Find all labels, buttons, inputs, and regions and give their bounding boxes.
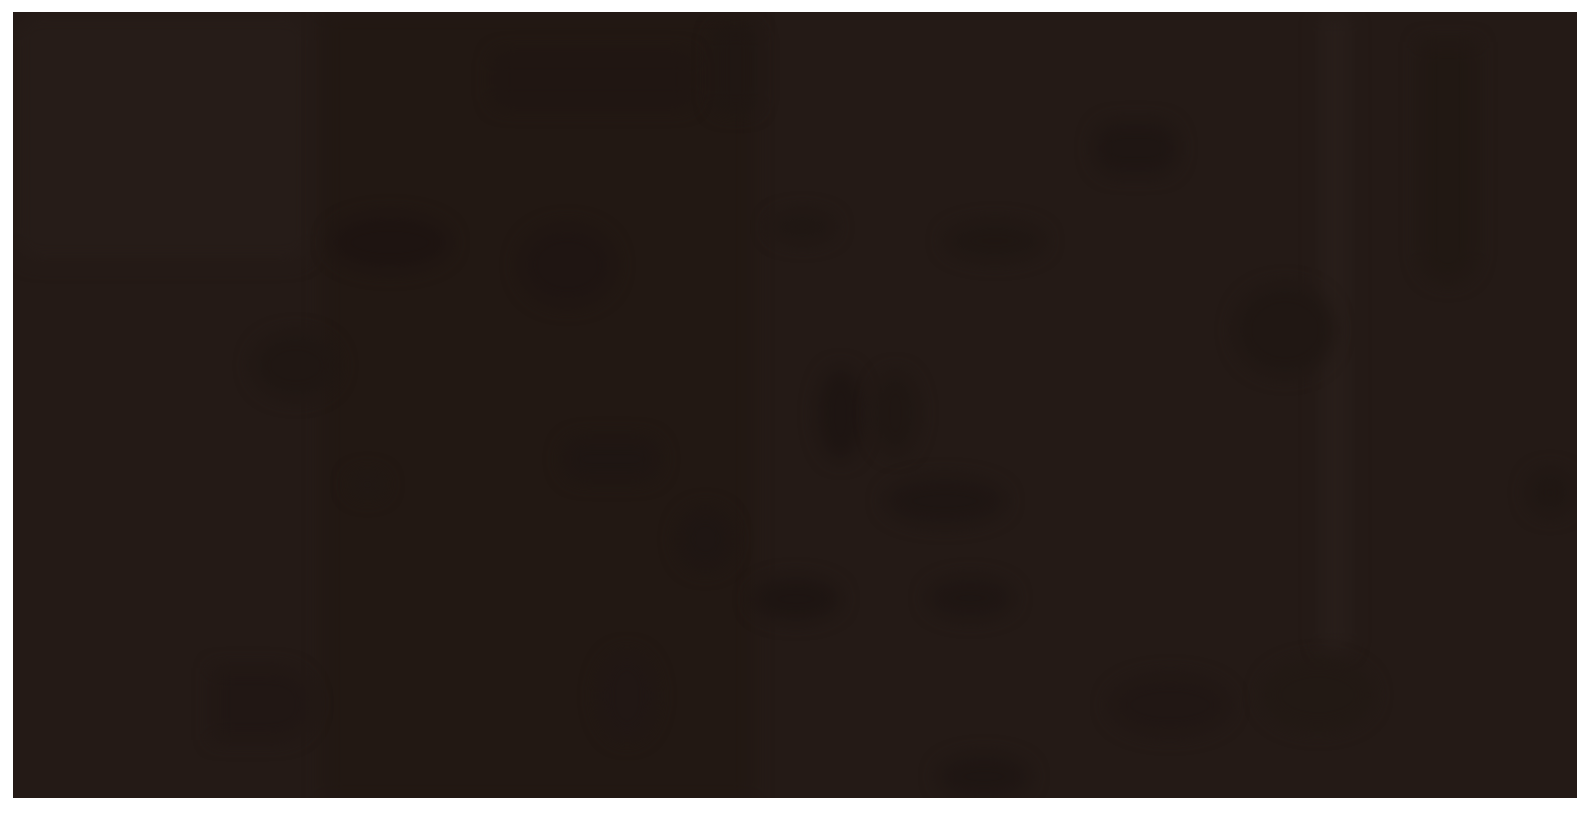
- shade-blob: [323, 12, 753, 798]
- shade-blob: [1528, 470, 1573, 515]
- shade-blob: [713, 27, 758, 112]
- shade-blob: [945, 222, 1045, 260]
- shade-blob: [770, 212, 835, 242]
- shade-blob: [1263, 660, 1373, 730]
- shade-blob: [1420, 42, 1476, 282]
- shade-blob: [253, 333, 338, 398]
- shade-blob: [330, 215, 450, 270]
- shade-blob: [598, 652, 656, 740]
- shade-blob: [520, 225, 615, 305]
- shade-blob: [1235, 285, 1335, 375]
- page-background: [0, 0, 1594, 834]
- shade-blob: [678, 508, 733, 570]
- shade-blob: [213, 668, 313, 740]
- shade-blob: [885, 478, 1005, 524]
- shade-blob: [563, 438, 660, 480]
- shade-blob: [13, 12, 313, 262]
- shade-blob: [873, 372, 918, 454]
- shade-blob: [928, 578, 1013, 618]
- shade-blob: [752, 578, 840, 620]
- shade-blob: [350, 472, 385, 497]
- shade-blob: [818, 368, 863, 460]
- shade-blob: [938, 755, 1030, 798]
- dark-photo: [13, 12, 1577, 798]
- shade-blob: [1095, 122, 1177, 174]
- shade-blob: [1110, 675, 1230, 735]
- shade-blob: [493, 52, 693, 107]
